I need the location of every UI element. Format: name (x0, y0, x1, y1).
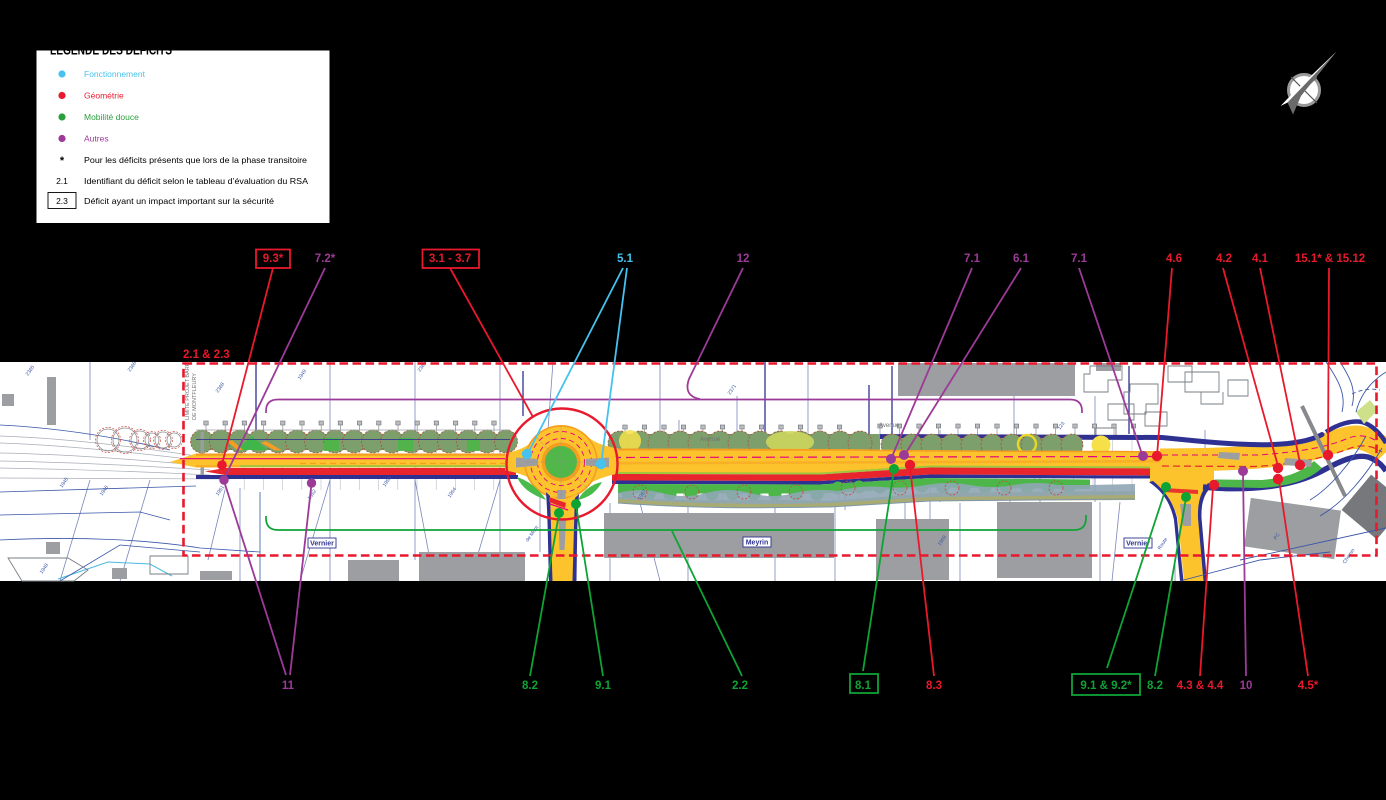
svg-text:7.1: 7.1 (964, 253, 981, 265)
svg-text:10: 10 (1240, 680, 1253, 692)
svg-text:Meyrin: Meyrin (746, 540, 769, 547)
svg-text:6.1: 6.1 (1013, 253, 1030, 265)
svg-text:Vernier: Vernier (310, 541, 334, 548)
svg-text:2.2: 2.2 (732, 680, 748, 692)
svg-text:4.2: 4.2 (1216, 253, 1232, 265)
svg-text:15.1* & 15.12: 15.1* & 15.12 (1295, 253, 1365, 265)
svg-text:2.1 & 2.3: 2.1 & 2.3 (183, 349, 230, 361)
svg-text:3.1 - 3.7: 3.1 - 3.7 (429, 253, 471, 265)
svg-text:2.3: 2.3 (56, 196, 68, 206)
svg-text:9.1 & 9.2*: 9.1 & 9.2* (1080, 680, 1132, 692)
svg-text:8.2: 8.2 (522, 680, 538, 692)
svg-text:8.3: 8.3 (926, 680, 942, 692)
svg-text:Pour les déficits présents que: Pour les déficits présents que lors de l… (84, 155, 307, 165)
svg-text:12: 12 (737, 253, 750, 265)
svg-text:11: 11 (282, 680, 295, 692)
svg-text:9.1: 9.1 (595, 680, 612, 692)
svg-text:LÉGENDE DES DÉFICITS: LÉGENDE DES DÉFICITS (50, 42, 172, 58)
svg-text:*: * (60, 155, 65, 167)
svg-text:8.1: 8.1 (855, 680, 872, 692)
svg-text:Géométrie: Géométrie (84, 91, 124, 101)
svg-text:Fonctionnement: Fonctionnement (84, 69, 146, 79)
svg-text:5.1: 5.1 (617, 253, 634, 265)
svg-text:7.2*: 7.2* (315, 253, 336, 265)
svg-text:4.3 & 4.4: 4.3 & 4.4 (1177, 680, 1224, 692)
svg-text:4.1: 4.1 (1252, 253, 1269, 265)
svg-text:DE MONTFLEURY: DE MONTFLEURY (192, 373, 198, 420)
svg-text:9.3*: 9.3* (263, 253, 284, 265)
svg-text:Autres: Autres (84, 134, 109, 144)
svg-text:Avenue: Avenue (700, 437, 721, 443)
svg-text:Mobilité douce: Mobilité douce (84, 112, 139, 122)
svg-text:Déficit ayant un impact import: Déficit ayant un impact important sur la… (84, 196, 274, 206)
svg-text:Identifiant du déficit selon l: Identifiant du déficit selon le tableau … (84, 176, 308, 186)
svg-text:LIMITE PROJET BARR.: LIMITE PROJET BARR. (185, 360, 191, 420)
svg-text:4.6: 4.6 (1166, 253, 1182, 265)
svg-text:8.2: 8.2 (1147, 680, 1163, 692)
svg-text:4.5*: 4.5* (1298, 680, 1319, 692)
svg-text:Avenue: Avenue (879, 423, 900, 429)
svg-text:2.1: 2.1 (56, 176, 68, 186)
svg-text:7.1: 7.1 (1071, 253, 1088, 265)
